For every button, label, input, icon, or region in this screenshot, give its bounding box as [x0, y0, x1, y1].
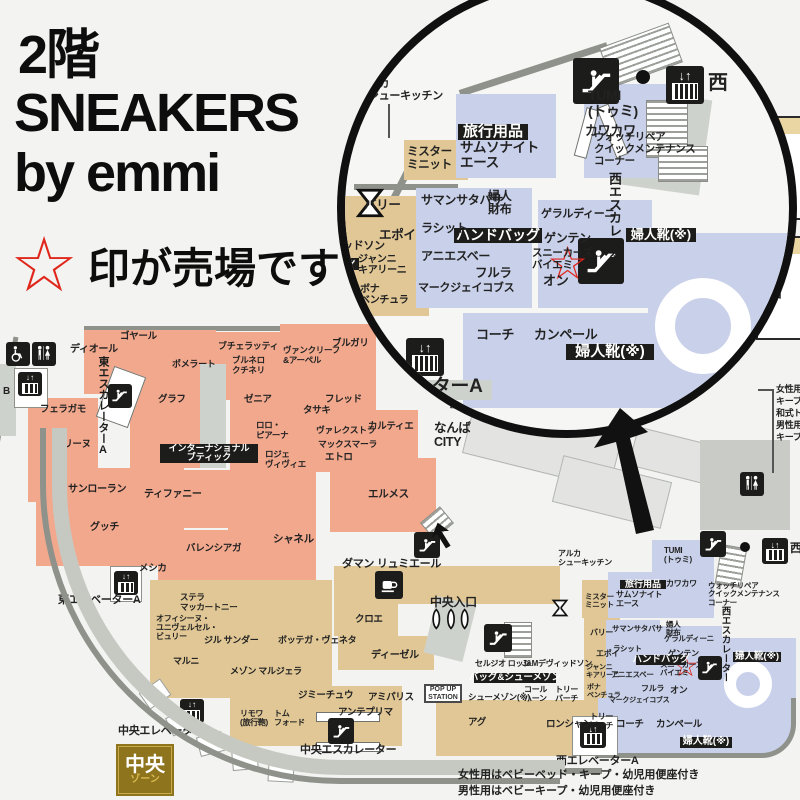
shop-label: フェラガモ: [40, 405, 86, 416]
shop-label-dark: 婦人靴(※): [566, 344, 654, 360]
round-bench: [724, 660, 772, 708]
shop-label: アニエスベー: [611, 671, 654, 679]
brand-title-line2: by emmi: [14, 146, 219, 200]
shop-label: ゲンテン: [544, 232, 591, 245]
shop-label: ゼニア: [244, 395, 272, 406]
shop-label-dark: 婦人靴(※): [680, 737, 732, 748]
shop-label: サムソナイト エース: [460, 140, 539, 170]
shop-label: ジャンニ キアリーニ: [358, 254, 407, 276]
shop-label-dark: 旅行用品: [620, 580, 666, 589]
escalator-icon: [700, 531, 726, 557]
shop-label: 和式トイ: [776, 408, 800, 418]
shop-label-dark: 婦人靴(※): [626, 228, 696, 242]
shop-label-dark: 旅行用品: [458, 124, 528, 140]
shop-label: ゲラルディーニ: [664, 635, 714, 643]
shop-label: グラフ: [158, 395, 186, 406]
pointer-arrow-icon: [592, 402, 692, 542]
shop-label: ミスター ミニット: [585, 593, 614, 610]
shop-label: B: [3, 386, 10, 397]
elevator-icon: ↓↑: [762, 538, 788, 564]
restroom-icon: [740, 472, 764, 496]
center-zone-badge: 中央ゾーン: [118, 746, 172, 794]
shop-label: ラシット: [421, 222, 468, 235]
shop-label: 男性用: [776, 420, 800, 430]
brand-title-line1: SNEAKERS: [14, 86, 298, 140]
shop-label: TUMI (トゥミ): [664, 547, 692, 565]
shop-label: ーターA: [413, 376, 483, 397]
elevator-icon: ↓↑: [18, 372, 42, 396]
corridor-label: 西エスカレーター: [608, 172, 621, 297]
shop-label: ブルネロ クチネリ: [232, 356, 265, 375]
restroom-icon: [32, 342, 56, 366]
shop-label: カワカワ: [666, 580, 697, 589]
shop-label: フルラ: [641, 685, 664, 694]
shop-label: ッドソン: [342, 240, 385, 252]
shop-label: バリー: [590, 629, 613, 638]
shop-label-dark: 婦人靴(※): [733, 652, 781, 662]
shop-label: オン: [543, 274, 568, 289]
shop-label: カンペール: [656, 720, 702, 731]
shop-label: バリー: [364, 198, 401, 212]
legend-note: 印が売場です: [88, 248, 340, 290]
shop-label: カンペール: [534, 328, 598, 343]
shop-label: 婦人 財布: [488, 190, 511, 217]
shop-label: スニーカーズ バイエミ: [532, 248, 593, 272]
corridor-label: 西エスカレーター: [720, 606, 730, 690]
shop-label: ポメラート: [172, 359, 216, 369]
shop-label: サマンサタバサ: [612, 625, 662, 633]
shop-label: 西: [790, 542, 800, 555]
shop-label: ゲンテン: [668, 650, 699, 659]
round-bench: [655, 278, 751, 374]
shop-label: トリー バーチ: [590, 713, 613, 731]
shop-label: オン: [670, 685, 687, 695]
shop-label: TUMI (トゥミ): [588, 88, 638, 119]
shop-label: 西: [708, 72, 728, 94]
elevator-icon: ↓↑: [666, 66, 704, 104]
shop-label: タサキ: [303, 406, 331, 417]
shop-label: ボナ ベンチュラ: [360, 284, 409, 306]
note-line-1: 女性用はベビーベッド・キープ・幼児用便座付き: [458, 766, 699, 782]
shop-label: アニエスベー: [421, 250, 490, 263]
shop-label: ミスター ミニット: [407, 146, 452, 172]
shop-label: スニーカーズ バイエミ: [660, 661, 703, 678]
floor-title: 2階: [18, 28, 98, 82]
shop-label: ウォッチリペア クイックメンテナンス コーナー: [594, 132, 695, 167]
shop-label: マークジェイコブス: [418, 282, 514, 294]
shop-label: サムソナイト エース: [616, 591, 662, 609]
map-shape: [388, 104, 390, 138]
legend-star-icon: ☆: [10, 228, 78, 304]
escalator-icon: [108, 384, 132, 408]
shop-label: コーチ: [616, 720, 644, 731]
walkway-band: [52, 428, 565, 775]
shop-label: ラシット: [613, 645, 642, 653]
elevator-icon: ↓↑: [406, 338, 444, 376]
dot-marker: [740, 542, 750, 552]
shop-label: フルラ: [475, 266, 512, 280]
magnified-inset-circle: ↓↑↓↑ン旅行用品ハンドバッグ婦人靴(※)婦人靴(※)☆西エスカレータールカ シ…: [337, 0, 797, 438]
shop-label: ウォッチリペア クイックメンテナンス コーナー: [708, 582, 780, 607]
shop-label: ゴヤール: [120, 332, 157, 343]
shop-label: キープ・: [776, 432, 800, 442]
dot-marker: [636, 70, 650, 84]
shop-label: アルカ シューキッチン: [558, 550, 612, 568]
shop-label: ゲラルディーニ: [541, 208, 615, 220]
shop-label: コーチ: [476, 328, 514, 343]
shop-label: マークジェイコブス: [609, 697, 669, 705]
accessible-icon: [6, 342, 30, 366]
shop-label: ブルガリ: [332, 339, 369, 350]
note-line-2: 男性用はベビーキープ・幼児用便座付き: [458, 782, 655, 798]
floor-map-page: 2階 SNEAKERS by emmi ☆ 印が売場です ↓↑↓↑↓↑↓↑↓↑P…: [0, 0, 800, 800]
shop-label: ディオール: [70, 344, 118, 355]
shop-label: ルカ シューキッチン: [368, 78, 443, 103]
shop-label: ブチェラッティ: [218, 341, 278, 351]
